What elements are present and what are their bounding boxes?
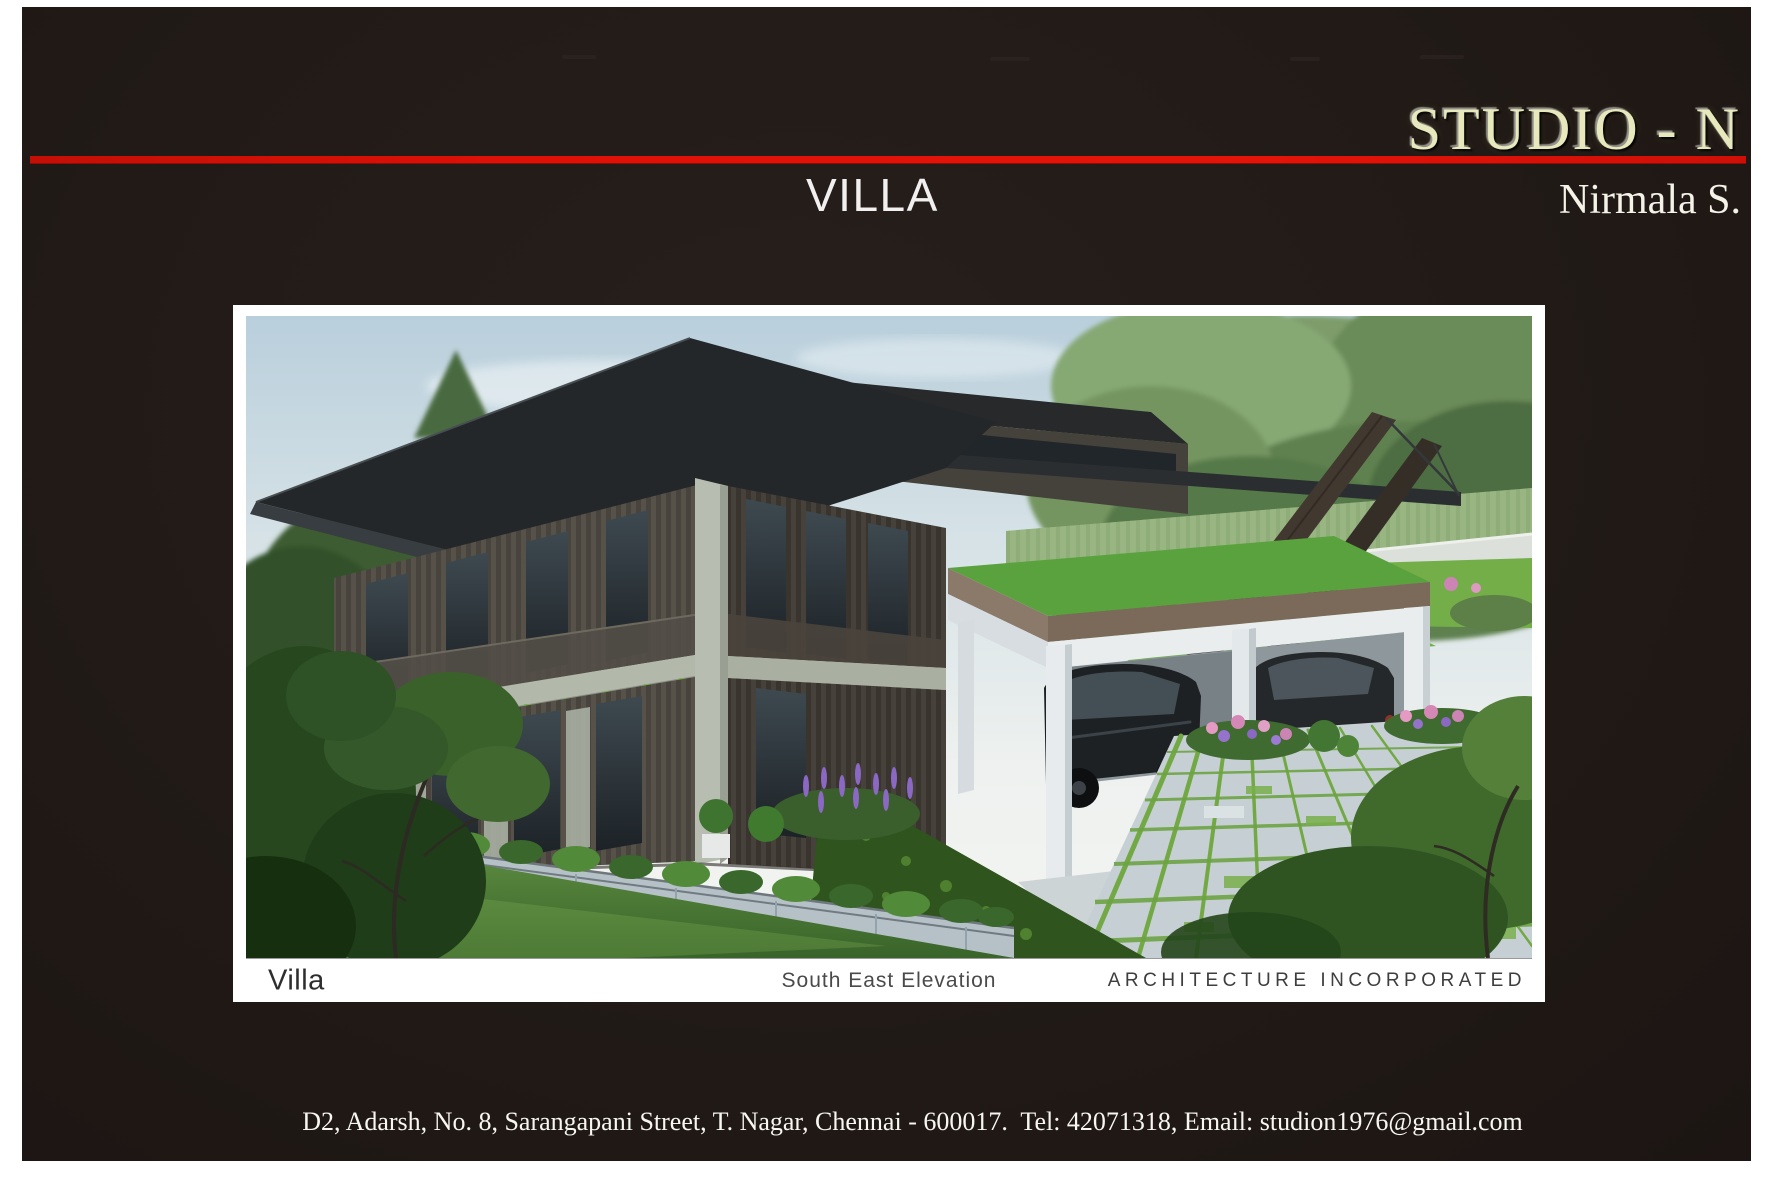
- texture-smudge: [1290, 57, 1320, 61]
- studio-logo-text: STUDIO - N: [1408, 99, 1741, 159]
- slide-background: STUDIO - N Nirmala S. VILLA: [22, 7, 1751, 1161]
- texture-smudge: [562, 55, 596, 59]
- contact-footer: D2, Adarsh, No. 8, Sarangapani Street, T…: [48, 1107, 1777, 1137]
- slide-title: VILLA: [806, 172, 939, 218]
- author-name: Nirmala S.: [1559, 179, 1741, 221]
- project-label: Villa: [268, 965, 325, 998]
- firm-label: ARCHITECTURE INCORPORATED: [1108, 970, 1526, 992]
- villa-rendering: [246, 316, 1532, 959]
- texture-smudge: [1420, 55, 1464, 59]
- rendering-frame: Villa South East Elevation ARCHITECTURE …: [233, 305, 1545, 1002]
- title-block: Villa South East Elevation ARCHITECTURE …: [246, 960, 1532, 1002]
- accent-divider-line: [30, 156, 1746, 164]
- villa-rendering-scene: [246, 316, 1532, 958]
- view-label: South East Elevation: [782, 969, 997, 993]
- texture-smudge: [990, 57, 1030, 61]
